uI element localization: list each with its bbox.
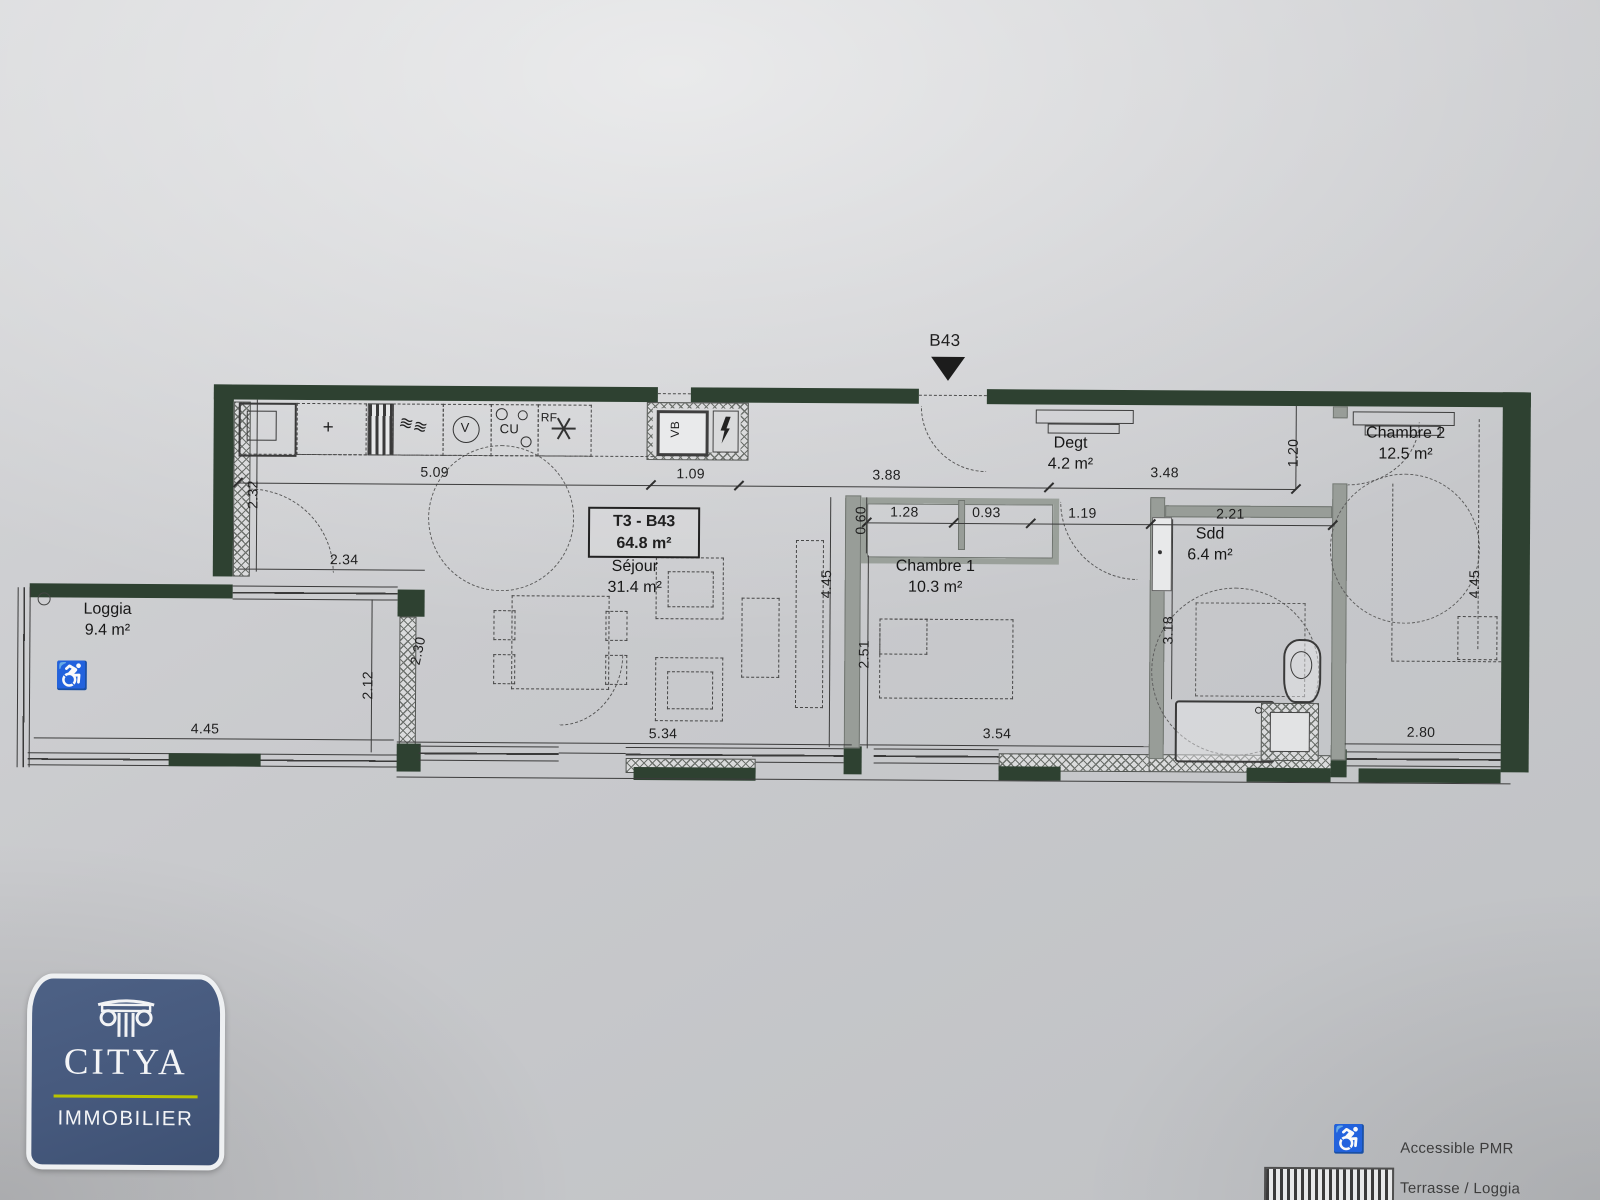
loggia-rail-left — [17, 587, 31, 767]
title-box: T3 - B43 64.8 m² — [588, 507, 700, 559]
dim-534: 5.34 — [649, 725, 678, 741]
wall-left — [213, 384, 234, 576]
duct-gap-line — [658, 393, 691, 394]
sill-3 — [1247, 768, 1331, 783]
room-area: 6.4 m² — [1155, 545, 1265, 566]
room-area: 31.4 m² — [575, 577, 695, 599]
fridge-label: RF — [541, 410, 558, 424]
wheelchair-icon-loggia: ♿ — [55, 659, 89, 691]
column-icon — [94, 991, 158, 1039]
floor-plan-photo: B43 VB + ≋≋ — [0, 0, 1600, 1200]
dim-280: 2.80 — [1407, 724, 1436, 740]
low-table — [741, 598, 779, 678]
wheelchair-icon-legend: ♿ — [1332, 1123, 1366, 1155]
room-name: Chambre 1 — [868, 556, 1003, 578]
entrance-arrow-icon — [931, 357, 965, 381]
bed-chambre2-foot — [1391, 661, 1501, 663]
pmr-circle-chambre2 — [1330, 473, 1481, 624]
dim-318: 3.18 — [1160, 616, 1176, 645]
sdd-north-wall — [1165, 505, 1332, 518]
legend-accessible-label: Accessible PMR — [1400, 1140, 1514, 1158]
dim-120: 1.20 — [1285, 439, 1301, 468]
room-area: 10.3 m² — [868, 577, 1003, 599]
sill-4 — [1359, 768, 1501, 783]
pot-circle-2 — [518, 410, 528, 420]
outer-sill-line — [397, 777, 1511, 785]
wall-right — [1501, 392, 1531, 772]
dim-388: 3.88 — [872, 466, 901, 482]
sejour-loggia-window — [233, 586, 398, 601]
room-name: Chambre 2 — [1326, 423, 1486, 445]
pier-2 — [844, 746, 862, 774]
dim-109: 1.09 — [676, 465, 705, 481]
room-area: 9.4 m² — [47, 620, 167, 642]
sink-basin — [247, 411, 277, 441]
dim-251: 2.51 — [855, 640, 871, 669]
chair-1 — [493, 610, 515, 640]
room-name: Sdd — [1155, 524, 1265, 545]
room-label-loggia: Loggia 9.4 m² — [47, 599, 167, 641]
wall-sdd-chambre2-top — [1333, 406, 1348, 418]
room-area: 12.5 m² — [1325, 444, 1485, 466]
dim-212: 2.12 — [359, 671, 375, 700]
brand-accent-line — [54, 1094, 198, 1098]
room-label-chambre2: Chambre 2 12.5 m² — [1325, 423, 1485, 466]
loggia-sill — [169, 753, 261, 767]
degt-shelf-1 — [1036, 409, 1134, 424]
wall-top-2 — [691, 387, 919, 403]
dim-348: 3.48 — [1150, 464, 1179, 480]
oven-label: V — [461, 420, 470, 435]
dim-line-loggia — [34, 737, 394, 741]
dining-table — [511, 595, 610, 690]
citya-logo-badge: CITYA IMMOBILIER — [26, 973, 225, 1170]
wall-top-3 — [987, 389, 1531, 407]
plan-sheet: B43 VB + ≋≋ — [0, 0, 1600, 1200]
loggia-top-wall — [30, 583, 233, 598]
dim-line-445s — [829, 497, 832, 747]
closet-divider — [958, 500, 965, 550]
room-label-sejour: Séjour 31.4 m² — [575, 557, 695, 599]
room-label-chambre1: Chambre 1 10.3 m² — [868, 556, 1003, 598]
pot-circle-3 — [521, 436, 532, 447]
legend-terrasse-label: Terrasse / Loggia — [1400, 1180, 1520, 1198]
dim-445s: 4.45 — [818, 570, 834, 599]
room-name: Degt — [1016, 433, 1126, 454]
door-threshold — [559, 753, 626, 755]
shower-tray — [1270, 712, 1310, 752]
dim-093: 0.93 — [972, 504, 1001, 520]
room-name: Loggia — [47, 599, 167, 621]
unit-label: B43 — [929, 331, 960, 351]
kitchen-door-arc — [250, 489, 335, 574]
wall-pier — [398, 590, 425, 617]
entry-gap-line — [919, 395, 987, 396]
vb-duct-box — [657, 410, 709, 456]
room-name: Séjour — [575, 557, 695, 579]
room-label-sdd: Sdd 6.4 m² — [1155, 524, 1265, 566]
dishwasher-stripes — [368, 403, 394, 455]
entry-door-arc — [920, 406, 986, 472]
room-label-degt: Degt 4.2 m² — [1015, 433, 1125, 475]
chair-2 — [493, 654, 515, 684]
dim-234: 2.34 — [330, 551, 359, 567]
dim-232: 2.32 — [244, 480, 260, 509]
chambre2-window — [1347, 751, 1501, 767]
pier-1 — [397, 744, 421, 772]
sill-2 — [999, 766, 1061, 780]
pot-circle-1 — [496, 408, 508, 420]
chair-4 — [605, 655, 627, 685]
dim-509: 5.09 — [420, 464, 449, 480]
chair-3 — [605, 611, 627, 641]
dim-119: 1.19 — [1068, 505, 1097, 521]
cooking-label: CU — [500, 421, 519, 436]
wall-top-1 — [214, 384, 658, 402]
dim-445c2: 4.45 — [1466, 570, 1482, 599]
brand-tagline: IMMOBILIER — [31, 1106, 219, 1131]
dim-445l: 4.45 — [191, 720, 220, 736]
degt-shelf-2 — [1048, 424, 1120, 434]
bed-chambre1-pillow — [879, 618, 927, 654]
legend-terrasse-swatch — [1264, 1167, 1394, 1200]
dim-354: 3.54 — [983, 725, 1012, 741]
chambre1-window — [874, 748, 999, 764]
sejour-window-1 — [419, 746, 559, 762]
title-line1: T3 - B43 — [596, 511, 692, 533]
title-line2: 64.8 m² — [596, 532, 692, 554]
dim-128: 1.28 — [890, 504, 919, 520]
room-area: 4.2 m² — [1015, 454, 1125, 475]
armchair-2-inner — [667, 671, 713, 709]
dim-line-354 — [860, 744, 1149, 747]
sofa — [795, 540, 824, 708]
dim-060: 0.60 — [852, 506, 868, 535]
brand-name: CITYA — [32, 1040, 220, 1084]
dim-221: 2.21 — [1216, 506, 1245, 522]
pmr-circle-sejour — [428, 445, 575, 592]
faucet-icon: + — [323, 417, 335, 439]
dim-chain-top — [237, 483, 1295, 491]
toilet-bowl — [1290, 651, 1312, 679]
dim-line-280 — [1345, 743, 1501, 745]
vb-label: VB — [668, 421, 682, 438]
